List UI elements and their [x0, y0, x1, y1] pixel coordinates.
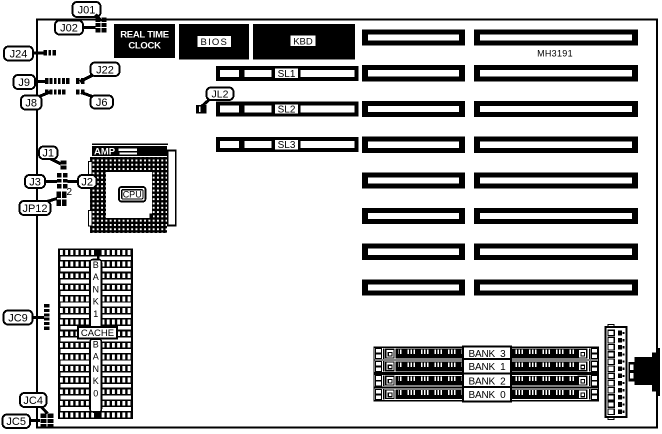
svg-text:A: A	[93, 352, 99, 362]
svg-text:J3: J3	[29, 177, 41, 189]
svg-text:1: 1	[93, 309, 98, 319]
svg-text:0: 0	[93, 388, 98, 398]
svg-text:J8: J8	[25, 98, 37, 110]
svg-text:SL1: SL1	[278, 69, 296, 80]
svg-text:JC9: JC9	[8, 313, 28, 325]
svg-text:BANK 2: BANK 2	[469, 376, 507, 387]
svg-text:JP12: JP12	[22, 203, 47, 215]
svg-text:A: A	[93, 272, 99, 282]
svg-text:JC5: JC5	[6, 416, 26, 428]
svg-text:B: B	[93, 260, 99, 270]
svg-text:K: K	[93, 297, 99, 307]
svg-text:N: N	[92, 284, 99, 294]
svg-text:AMP: AMP	[94, 146, 116, 157]
svg-text:CLOCK: CLOCK	[128, 41, 161, 52]
svg-text:J9: J9	[18, 77, 30, 89]
svg-text:CACHE: CACHE	[81, 328, 114, 339]
svg-text:MH3191: MH3191	[537, 49, 573, 59]
svg-text:J01: J01	[78, 5, 96, 17]
svg-text:REAL TIME: REAL TIME	[120, 30, 169, 41]
svg-text:J22: J22	[96, 65, 114, 77]
svg-text:SL3: SL3	[278, 140, 296, 151]
svg-text:2: 2	[67, 187, 73, 198]
svg-text:N: N	[92, 364, 99, 374]
svg-text:SL2: SL2	[278, 105, 296, 116]
svg-text:J1: J1	[42, 148, 54, 160]
svg-text:BANK 1: BANK 1	[469, 362, 507, 373]
svg-text:CPU: CPU	[123, 189, 142, 199]
svg-text:KBD: KBD	[293, 36, 313, 47]
svg-text:J2: J2	[81, 177, 93, 189]
svg-text:JC4: JC4	[23, 395, 43, 407]
svg-text:JL2: JL2	[212, 88, 229, 100]
svg-text:B: B	[93, 340, 99, 350]
svg-text:J24: J24	[10, 49, 28, 61]
svg-text:J6: J6	[96, 97, 108, 109]
svg-text:BIOS: BIOS	[201, 37, 229, 48]
svg-text:K: K	[93, 376, 99, 386]
svg-text:BANK 0: BANK 0	[469, 390, 507, 401]
svg-text:J02: J02	[60, 23, 78, 35]
